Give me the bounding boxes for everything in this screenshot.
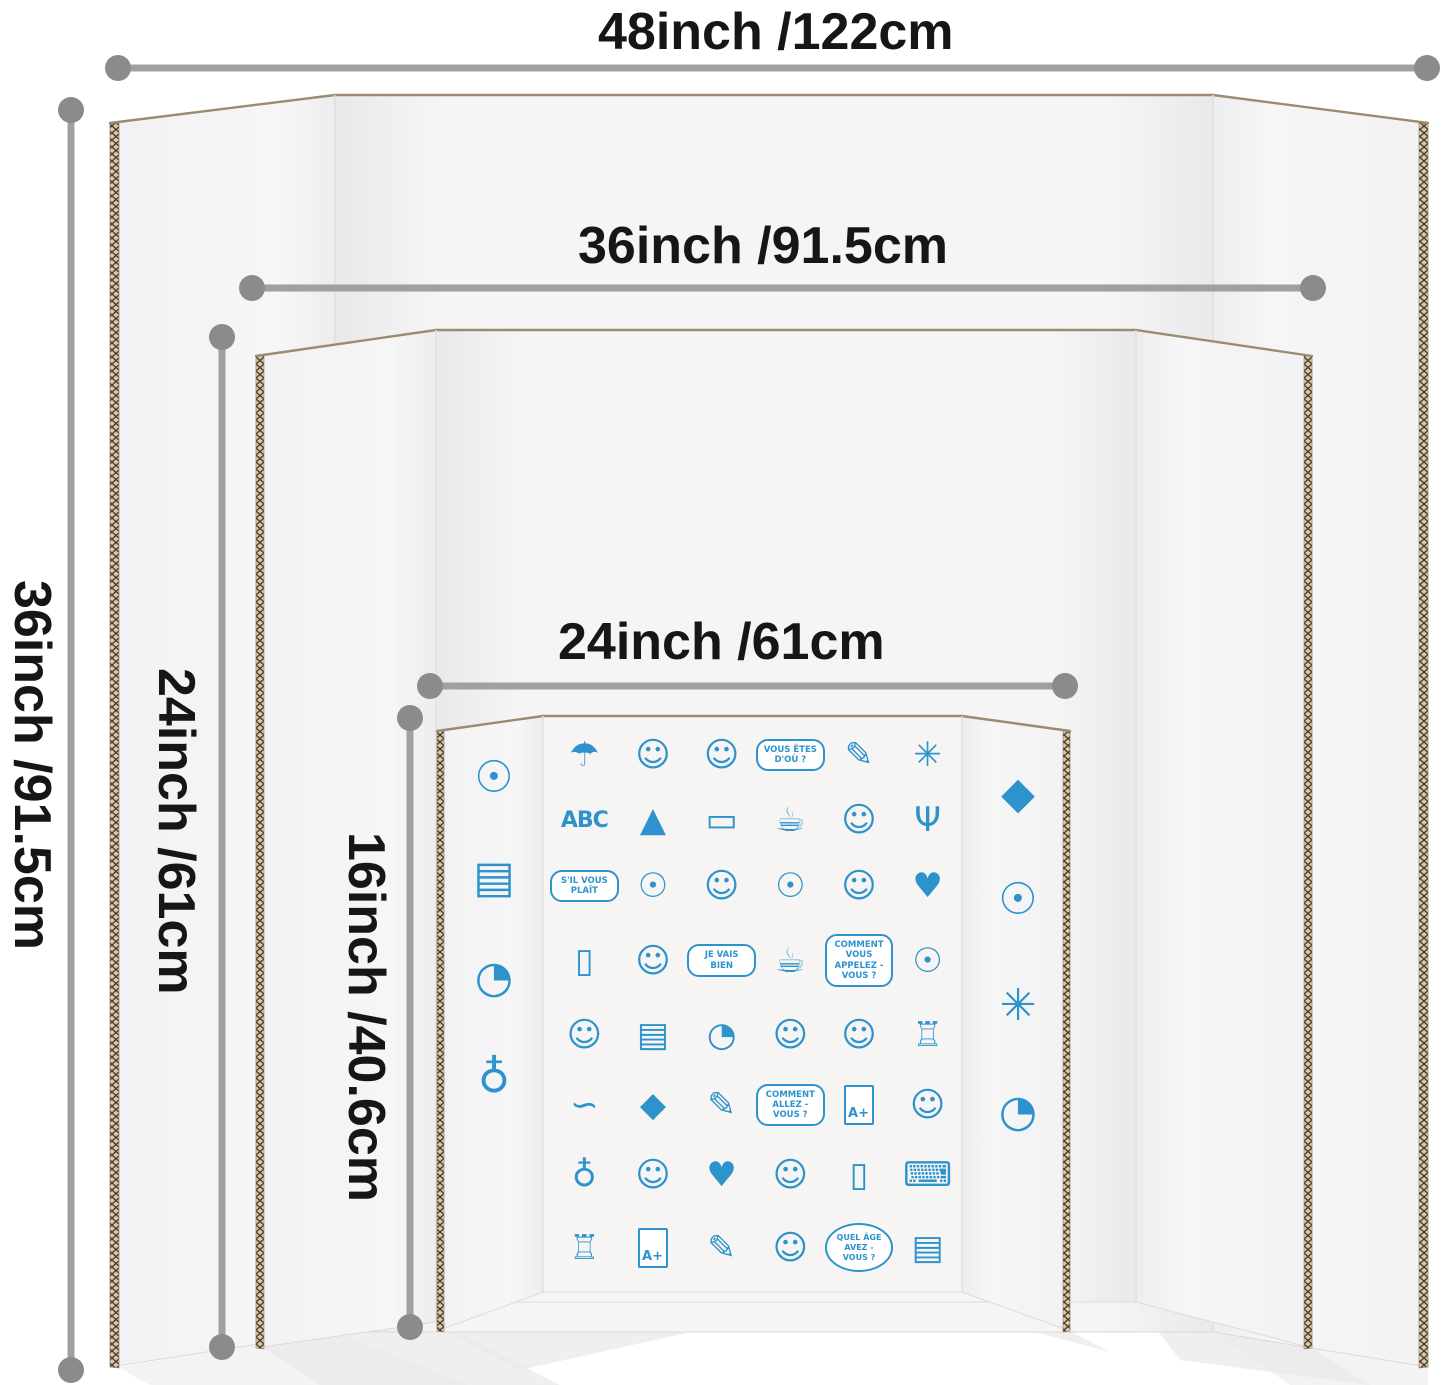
doodle-girl: ☺: [704, 738, 739, 772]
width-24-label: 24inch /61cm: [558, 612, 885, 672]
small-board-right-corrugated-edge: [1063, 730, 1070, 1332]
height-36-label: 36inch /91.5cm: [2, 580, 62, 950]
doodle-coffee-cup: ☕: [775, 803, 805, 837]
doodle-boy: ☺: [635, 944, 670, 978]
doodle-graduation-cap: ◆: [640, 1088, 666, 1122]
width-48-dot-right: [1414, 55, 1440, 81]
height-36-dot-bottom: [58, 1357, 84, 1383]
doodle-eraser: ▭: [706, 803, 738, 837]
doodle-wall-clock: ◔: [999, 1090, 1037, 1134]
doodle-boy: ☺: [567, 1018, 602, 1052]
doodle-book-stack: ▤: [912, 1231, 944, 1265]
doodle-boy-with-coffee: ☺: [635, 1158, 670, 1192]
doodle-speech-bubble: VOUS ÊTES D'OÙ ?: [756, 739, 825, 771]
doodle-light-bulb: ☉: [912, 944, 942, 978]
doodle-speech-bubble: JE VAIS BIEN: [687, 944, 756, 976]
width-36-dot-right: [1300, 275, 1326, 301]
small-board-left-corrugated-edge: [437, 730, 444, 1332]
doodle-boy: ☺: [841, 1018, 876, 1052]
doodle-wine-glass: Ψ: [914, 803, 941, 837]
doodle-eiffel-tower: ♖: [912, 1018, 942, 1052]
doodle-thought-cloud: QUEL ÂGE AVEZ - VOUS ?: [825, 1223, 894, 1272]
small-board-right-wing-doodles: ◆☉✳◔: [972, 772, 1064, 1134]
doodle-alarm-clock-on-books: ◔: [475, 956, 513, 1000]
doodle-speech-bubble: COMMENT ALLEZ - VOUS ?: [756, 1084, 825, 1127]
height-24-dot-top: [209, 324, 235, 350]
doodle-girl: ☺: [910, 1088, 945, 1122]
width-48-dot-left: [105, 55, 131, 81]
height-36-dot-top: [58, 97, 84, 123]
height-16-label: 16inch /40.6cm: [336, 832, 396, 1202]
large-board-right-corrugated-edge: [1419, 122, 1428, 1368]
doodle-notre-dame-cathedral: ♖: [569, 1231, 599, 1265]
doodle-jar: ▯: [575, 944, 594, 978]
doodle-clock: ◔: [707, 1018, 737, 1052]
doodle-baguette-bread: ∽: [570, 1088, 599, 1122]
doodle-laptop-email: ⌨: [903, 1158, 952, 1192]
doodle-graded-paper: A+: [638, 1228, 668, 1268]
width-36-dot-left: [239, 275, 265, 301]
medium-board-left-corrugated-edge: [256, 355, 264, 1349]
doodle-brain-light-bulb: ☉: [998, 878, 1037, 922]
doodle-windmill: ✳: [913, 738, 942, 772]
height-16-dot-top: [397, 705, 423, 731]
doodle-girl-with-bows: ☺: [635, 738, 670, 772]
medium-board-right-wing: [1136, 330, 1312, 1348]
doodle-windmill: ✳: [1000, 984, 1037, 1028]
doodle-speech-bubble: S'IL VOUS PLAÎT: [550, 870, 619, 902]
doodle-graduation-cap: ◆: [1001, 772, 1035, 816]
width-24-dot-left: [417, 673, 443, 699]
doodle-pencil: ✎: [707, 1231, 736, 1265]
doodle-ant-girl: ☺: [773, 1231, 808, 1265]
doodle-paintbrush: ✎: [707, 1088, 736, 1122]
doodle-heart: ♥: [912, 869, 942, 903]
doodle-heart: ♥: [706, 1158, 736, 1192]
doodle-paintbrush: ✎: [845, 738, 874, 772]
height-24-dot-bottom: [209, 1334, 235, 1360]
small-board-left-wing-doodles: ☉▤◔♁: [448, 756, 540, 1100]
doodle-desk-globe: ♁: [572, 1158, 597, 1192]
medium-board-right-corrugated-edge: [1304, 355, 1312, 1349]
doodle-teacup: ☕: [775, 944, 805, 978]
doodle-sun-hat: ☂: [569, 738, 599, 772]
width-48-label: 48inch /122cm: [598, 2, 954, 62]
doodle-dancing-girl: ☺: [841, 869, 876, 903]
doodle-speech-bubble: COMMENT VOUS APPELEZ - VOUS ?: [825, 934, 894, 987]
doodle-open-book: ▤: [473, 856, 515, 900]
height-24-label: 24inch /61cm: [146, 668, 206, 995]
height-16-dot-bottom: [397, 1314, 423, 1340]
doodle-brain-light-bulb: ☉: [638, 869, 668, 903]
doodle-cheese: ▲: [640, 803, 666, 837]
doodle-light-bulb: ☉: [474, 756, 513, 800]
small-board-center-doodles: ☂☺☺VOUS ÊTES D'OÙ ?✎✳ABC▲▭☕☺ΨS'IL VOUS P…: [550, 722, 962, 1288]
doodle-abc-blocks: ABC: [561, 808, 608, 833]
doodle-girl: ☺: [773, 1018, 808, 1052]
doodle-graded-paper: A+: [844, 1085, 874, 1125]
product-size-diagram: 48inch /122cm 36inch /91.5cm 24inch /61c…: [0, 0, 1445, 1385]
doodle-desk-globe: ♁: [478, 1056, 510, 1100]
doodle-girl: ☺: [841, 803, 876, 837]
width-24-dot-right: [1052, 673, 1078, 699]
doodle-open-book: ▤: [637, 1018, 669, 1052]
doodle-boy: ☺: [704, 869, 739, 903]
doodle-light-bulb: ☉: [775, 869, 805, 903]
width-36-label: 36inch /91.5cm: [578, 216, 948, 276]
doodle-bottle: ▯: [850, 1158, 869, 1192]
large-board-left-corrugated-edge: [110, 122, 119, 1368]
doodle-boy: ☺: [773, 1158, 808, 1192]
